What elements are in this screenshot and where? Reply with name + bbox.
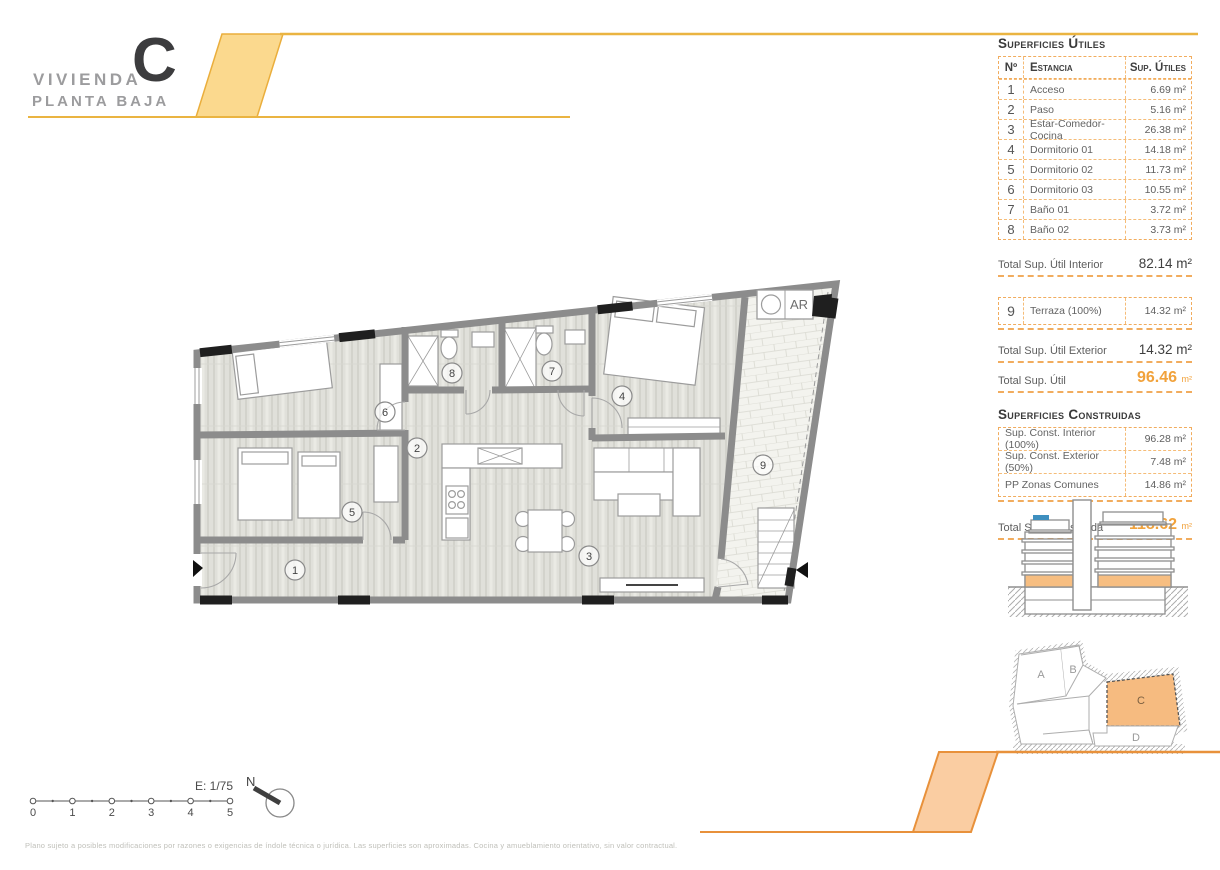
left-building: [1022, 515, 1076, 587]
svg-text:1: 1: [292, 565, 298, 577]
svg-text:2: 2: [414, 443, 420, 455]
table-row: 8Baño 023.73 m²: [999, 219, 1191, 239]
footer-accent-graphic: [690, 745, 1220, 840]
right-building: [1095, 512, 1174, 587]
table-row: 9 Terraza (100%) 14.32 m²: [999, 298, 1191, 324]
svg-text:2: 2: [109, 807, 115, 819]
svg-text:3: 3: [586, 551, 592, 563]
svg-text:4: 4: [619, 391, 625, 403]
svg-text:0: 0: [30, 807, 36, 819]
total-util: Total Sup. Útil 96.46 m²: [998, 369, 1192, 393]
table-row: 2Paso5.16 m²: [999, 99, 1191, 119]
room-label-5: 5: [342, 502, 362, 522]
pool-icon: [1033, 515, 1049, 520]
floorplan-drawing: AR 1 2 3 4 5 6 7 8 9: [180, 272, 860, 612]
room-label-3: 3: [579, 546, 599, 566]
legal-disclaimer: Plano sujeto a posibles modificaciones p…: [25, 841, 705, 850]
north-arrow-icon: N: [238, 770, 308, 822]
table-row: 7Baño 013.72 m²: [999, 199, 1191, 219]
parcel-b-label: B: [1069, 664, 1076, 676]
svg-text:9: 9: [760, 460, 766, 472]
svg-text:8: 8: [449, 368, 455, 380]
construidas-heading: Superficies Construidas: [998, 407, 1192, 422]
plan-sheet: VIVIENDA C PLANTA BAJA: [0, 0, 1220, 870]
table-row: Sup. Const. Interior (100%)96.28 m²: [999, 428, 1191, 450]
table-row: Sup. Const. Exterior (50%)7.48 m²: [999, 450, 1191, 473]
svg-text:5: 5: [349, 507, 355, 519]
utiles-table-header: Nº Estancia Sup. Útiles: [999, 57, 1191, 79]
table-row: 1Acceso6.69 m²: [999, 79, 1191, 99]
scale-numbers: 0 1 2 3 4 5: [30, 807, 233, 819]
svg-text:5: 5: [227, 807, 233, 819]
parcel-c-label: C: [1137, 695, 1145, 707]
closet-label: AR: [790, 297, 808, 312]
total-interior: Total Sup. Útil Interior 82.14 m²: [998, 256, 1192, 277]
room-label-2: 2: [407, 438, 427, 458]
room-label-4: 4: [612, 386, 632, 406]
room-label-1: 1: [285, 560, 305, 580]
divider: [998, 328, 1192, 330]
table-row: 3Estar-Comedor-Cocina26.38 m²: [999, 119, 1191, 139]
room-label-8: 8: [442, 363, 462, 383]
highlight-floor-right: [1098, 575, 1171, 587]
parcel-a-label: A: [1037, 669, 1045, 681]
terraza-table: 9 Terraza (100%) 14.32 m²: [998, 297, 1192, 325]
site-plan-diagram: A B C D: [1003, 638, 1198, 760]
utiles-table: Nº Estancia Sup. Útiles 1Acceso6.69 m² 2…: [998, 56, 1192, 240]
col-room-header: Estancia: [1024, 62, 1125, 74]
svg-text:6: 6: [382, 407, 388, 419]
scale-bar: E: 1/75 0 1 2 3 4 5: [25, 778, 240, 822]
total-exterior: Total Sup. Útil Exterior 14.32 m²: [998, 342, 1192, 363]
col-num-header: Nº: [999, 57, 1024, 78]
table-row: 6Dormitorio 0310.55 m²: [999, 179, 1191, 199]
utiles-heading: Superficies Útiles: [998, 36, 1192, 51]
north-label: N: [246, 774, 255, 789]
coffee-table: [618, 494, 660, 516]
table-row: 4Dormitorio 0114.18 m²: [999, 139, 1191, 159]
svg-text:1: 1: [69, 807, 75, 819]
terrace-arrow-icon: [796, 562, 808, 578]
footer-parallelogram: [913, 752, 998, 832]
room-label-6: 6: [375, 402, 395, 422]
areas-panel: Superficies Útiles Nº Estancia Sup. Útil…: [998, 36, 1192, 540]
wardrobe-dorm02: [374, 446, 398, 502]
room-label-7: 7: [542, 361, 562, 381]
table-row: 5Dormitorio 0211.73 m²: [999, 159, 1191, 179]
building-section-diagram: [1003, 492, 1193, 632]
parcel-d-label: D: [1132, 732, 1140, 744]
highlight-floor-left: [1025, 575, 1073, 587]
col-area-header: Sup. Útiles: [1125, 57, 1191, 78]
svg-text:4: 4: [188, 807, 194, 819]
scale-label: E: 1/75: [195, 779, 233, 793]
construidas-table: Sup. Const. Interior (100%)96.28 m² Sup.…: [998, 427, 1192, 497]
stair-core: [1073, 500, 1091, 610]
svg-text:7: 7: [549, 366, 555, 378]
svg-text:3: 3: [148, 807, 154, 819]
room-label-9: 9: [753, 455, 773, 475]
header-parallelogram: [196, 34, 283, 117]
